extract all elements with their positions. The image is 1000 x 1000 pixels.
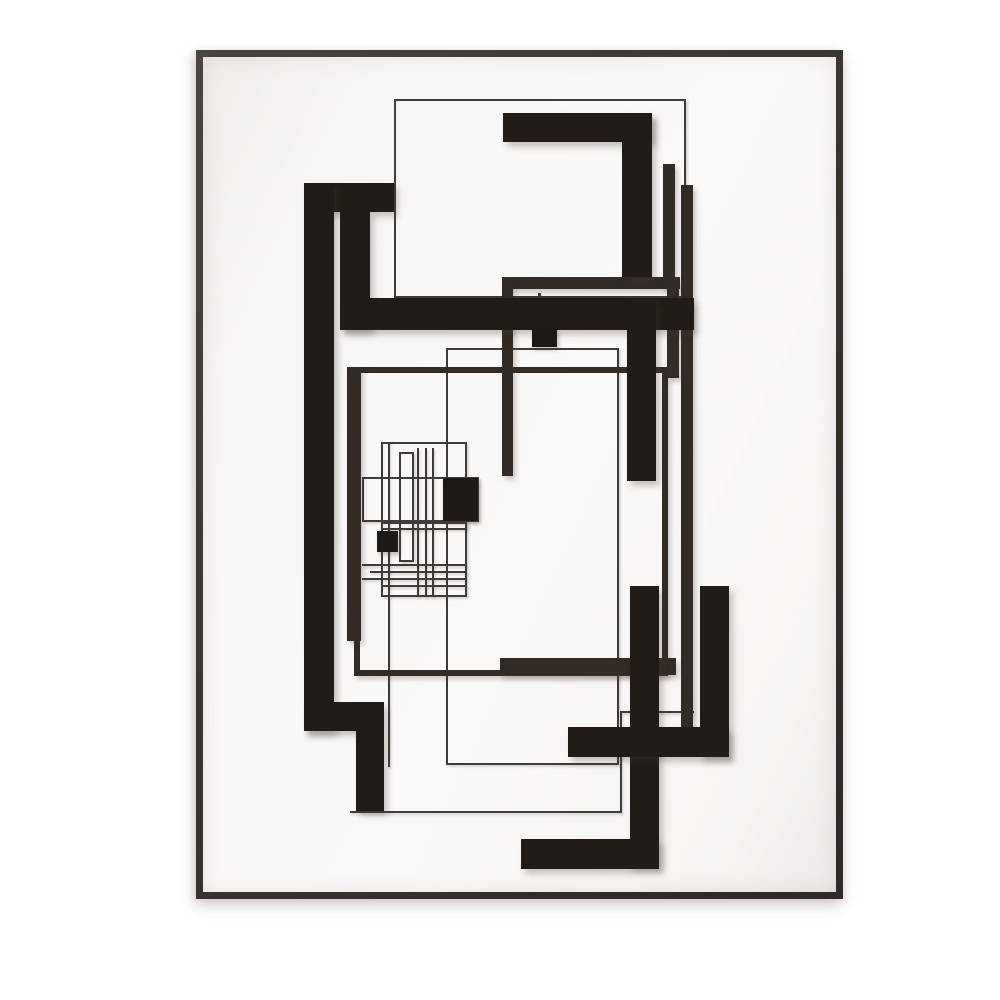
thin-line-bottom bbox=[350, 811, 622, 813]
cluster-black-square-left bbox=[377, 531, 398, 552]
small-black-square-top bbox=[532, 328, 557, 347]
medium-zigzag-up-right bbox=[663, 164, 675, 288]
thick-mid-vertical bbox=[627, 298, 656, 481]
thick-left-tall-bar bbox=[304, 183, 334, 731]
thick-right-vertical bbox=[700, 586, 729, 757]
medium-left-bar bbox=[347, 367, 361, 641]
artwork-composition bbox=[0, 0, 1000, 1000]
medium-zigzag-horizontal bbox=[502, 277, 680, 289]
cluster-black-square-right bbox=[443, 478, 478, 521]
thick-step-horizontal bbox=[304, 702, 384, 731]
thick-bottom-bar bbox=[521, 839, 659, 869]
photo-canvas bbox=[0, 0, 1000, 1000]
thick-step-vertical bbox=[356, 731, 384, 811]
medium-long-vertical bbox=[681, 185, 693, 727]
thick-right-tall-vertical bbox=[630, 586, 659, 866]
thick-c-right-vertical bbox=[622, 113, 652, 277]
